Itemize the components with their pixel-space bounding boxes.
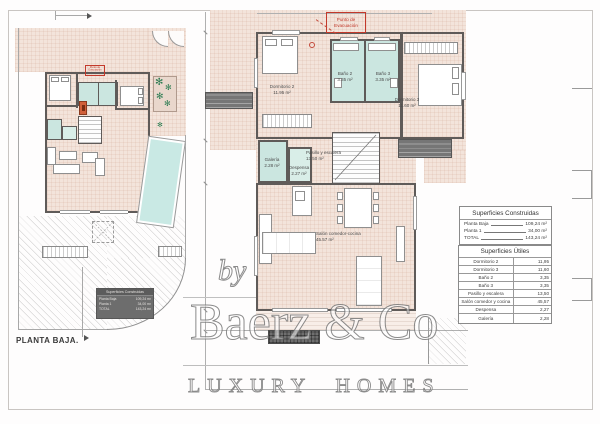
table-title: Superficies Construidas [460, 207, 551, 220]
leader-line [491, 225, 524, 226]
terrace-edge-line [183, 365, 468, 366]
dimension-bracket [591, 278, 592, 301]
interior-wall [400, 32, 403, 139]
pillow [265, 39, 277, 46]
pillow [51, 77, 59, 82]
bathroom-sink-counter [368, 43, 396, 51]
dining-table [344, 188, 372, 228]
plant-icon: ✻ [155, 78, 163, 88]
interior-wall [45, 105, 78, 107]
section-line [82, 267, 83, 337]
table-row: Planta Baja 109,24 m² [464, 222, 547, 227]
evacuation-point-marker [309, 42, 315, 48]
window [60, 210, 90, 214]
tv-unit [396, 226, 405, 262]
table-row: Salón comedor y cocina 45,57 [459, 297, 551, 305]
interior-wall [76, 72, 78, 108]
window [461, 72, 466, 100]
exterior-step-hatch [428, 318, 466, 364]
plant-icon: ✻ [157, 122, 163, 129]
dimension-line [183, 297, 256, 298]
evacuation-point-label: Punto de Evacuación [327, 17, 365, 28]
kitchen-counter [47, 147, 56, 165]
interior-wall [115, 80, 117, 110]
leader-line [481, 239, 523, 240]
sofa [53, 164, 80, 174]
mini-areas-table-title: Superficies Construidas [97, 289, 153, 296]
table-title: Superficies Útiles [459, 246, 551, 257]
room-label-bano3: Baño 3 3.35 m² [370, 71, 396, 82]
pillow [138, 97, 143, 104]
table-row: Dormitorio 2 11,95 [459, 257, 551, 265]
chair [373, 204, 379, 212]
exterior-steps [158, 246, 182, 257]
sofa [262, 232, 316, 254]
architectural-drawing-page: Punto de Evacuación ✻ ✻ ✻ ✻ ✻ Superficie… [0, 0, 600, 424]
room-label-dormitorio3: Dormitorio 3 11.60 m² [386, 97, 428, 108]
section-arrow-icon [84, 335, 89, 341]
boiler-unit [79, 101, 87, 115]
interior-wall [115, 108, 150, 110]
table-row: Galería 2,28 [459, 313, 551, 323]
plot-boundary-bottom [18, 329, 108, 330]
window [272, 308, 328, 312]
table-row: Pasillo y escalera 13,50 [459, 289, 551, 297]
window [374, 37, 390, 41]
table-row: TOTAL143,24 m² [97, 306, 153, 311]
pergola-cross [93, 222, 113, 242]
staircase [78, 116, 102, 144]
planter-bbq [268, 330, 320, 344]
stove-icon [295, 191, 305, 201]
pillow [138, 88, 143, 95]
dimension-tick [572, 170, 592, 171]
dimension-tick [572, 300, 592, 301]
dimension-tick [55, 11, 56, 20]
bathroom-divider-wall [364, 39, 366, 103]
chair [373, 192, 379, 200]
room-label-galeria: Galería 2.28 m² [258, 157, 286, 168]
superficies-utiles-table: Superficies Útiles Dormitorio 2 11,95 Do… [458, 245, 552, 324]
evacuation-point-mini: Punto de Evacuación [85, 65, 105, 76]
boiler-glyph [82, 105, 85, 111]
legend-table [398, 139, 452, 158]
window [254, 58, 258, 88]
plot-boundary-right [185, 135, 186, 259]
wardrobe [262, 114, 312, 128]
plant-icon: ✻ [156, 92, 164, 101]
pillow [61, 77, 69, 82]
chair [337, 192, 343, 200]
chair [337, 216, 343, 224]
table-row: Despensa 2,27 [459, 305, 551, 313]
bathroom-sink-counter [333, 43, 359, 51]
table-row: TOTAL 143,24 m² [464, 236, 547, 241]
window [340, 37, 358, 41]
chair [337, 204, 343, 212]
chair [373, 216, 379, 224]
pillow [281, 39, 293, 46]
legend-table [205, 92, 253, 109]
terrace-deck [256, 311, 416, 330]
window [254, 236, 258, 276]
room-label-pasillo: Pasillo y escalera 13.50 m² [306, 150, 350, 161]
room-label-despensa: Despensa 2.27 m² [284, 165, 314, 176]
dimension-tick [572, 88, 592, 89]
mini-areas-table: Superficies Construidas Planta Baja109,2… [96, 288, 154, 319]
pillow [452, 67, 459, 79]
dimension-line [55, 15, 87, 16]
plant-icon: ✻ [165, 84, 172, 92]
table-row: Baño 2 3,35 [459, 273, 551, 281]
window [413, 196, 417, 230]
table-row: Baño 3 3,35 [459, 281, 551, 289]
pergola [92, 221, 114, 243]
plant-icon: ✻ [164, 100, 171, 108]
window [100, 210, 128, 214]
tv-unit [95, 158, 105, 176]
kitchen-island [59, 151, 77, 160]
porch-steps [42, 246, 88, 258]
dimension-tick [572, 278, 592, 279]
window [336, 308, 392, 312]
table-row: Planta 1 34,00 m² [464, 229, 547, 234]
terrace-edge-line [205, 389, 468, 390]
window [272, 30, 300, 35]
room-label-salon: Salón comedor-cocina 45.57 m² [316, 231, 374, 242]
pillow [452, 83, 459, 95]
bathroom-divider-wall [98, 82, 99, 106]
dimension-bracket [591, 170, 592, 199]
sofa [356, 256, 382, 306]
galeria-room [47, 119, 62, 140]
superficies-construidas-table: Superficies Construidas Planta Baja 109,… [459, 206, 552, 245]
room-label-bano2: Baño 2 3.35 m² [332, 71, 358, 82]
closet [404, 42, 458, 54]
evacuation-point-mini-label: Punto de Evacuación [87, 66, 102, 71]
room-label-dormitorio2: Dormitorio 2 11.95 m² [262, 84, 302, 95]
leader-line [484, 232, 526, 233]
dimension-tick [572, 198, 592, 199]
plan-title: PLANTA BAJA. [16, 336, 79, 345]
despensa-room [62, 126, 77, 140]
dimension-arrow-icon [87, 13, 92, 19]
table-row: Dormitorio 3 11,60 [459, 265, 551, 273]
